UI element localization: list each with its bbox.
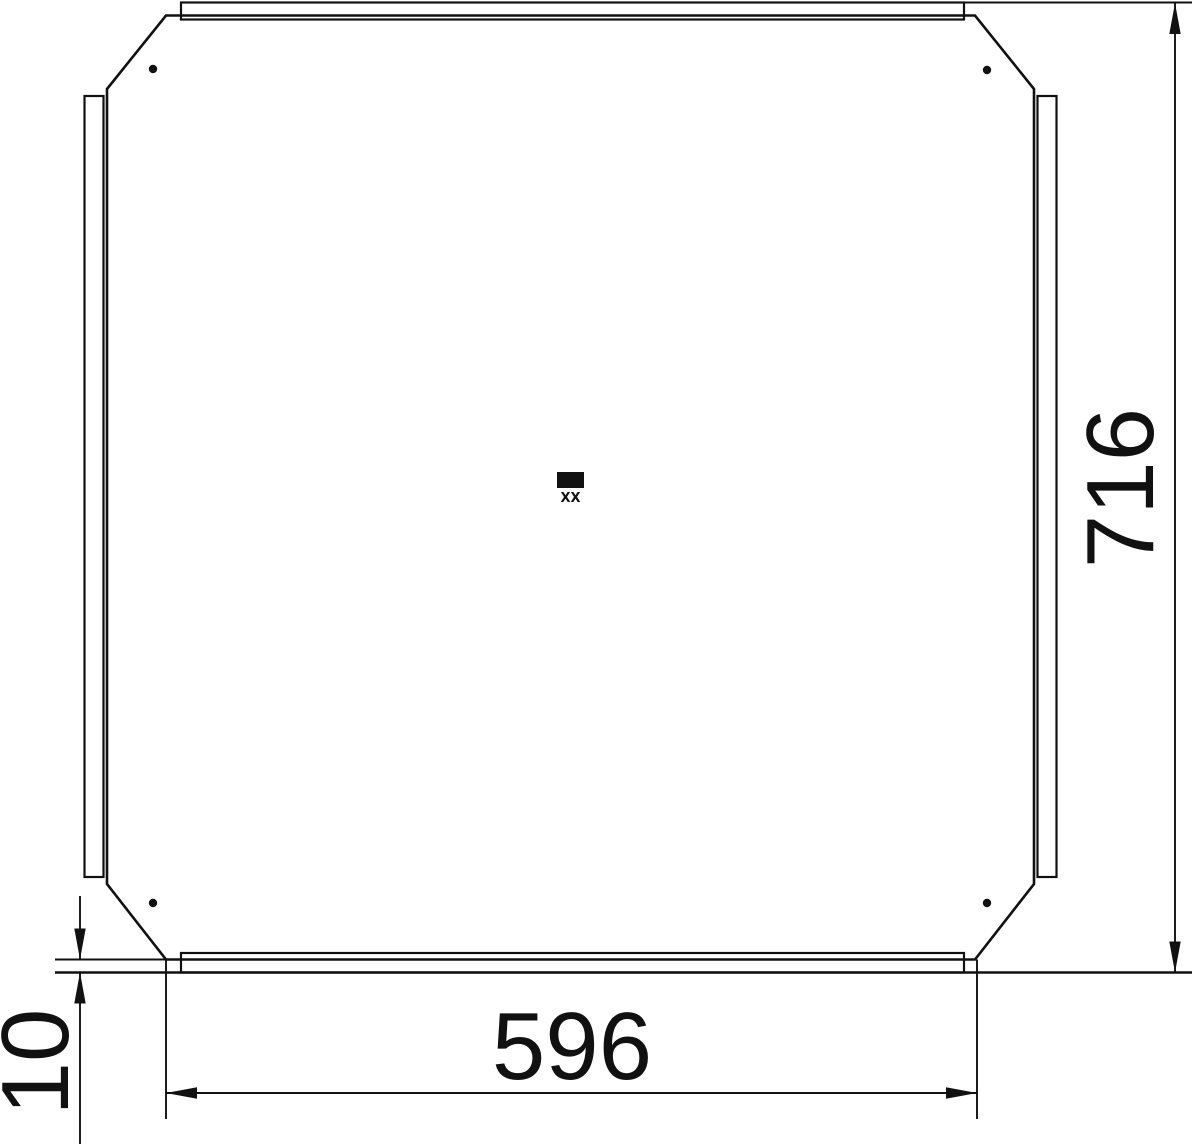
center-stamp: XX: [557, 472, 584, 506]
arrow-lip-down: [74, 929, 85, 960]
top-rail: [181, 3, 964, 20]
dim-label-height: 716: [1067, 408, 1174, 568]
arrow-width-right: [946, 1087, 977, 1098]
hole-bottom-left: [149, 899, 157, 907]
hole-top-left: [149, 65, 157, 73]
hole-bottom-right: [983, 899, 991, 907]
dim-label-width: 596: [492, 993, 652, 1100]
arrow-height-top: [1169, 3, 1180, 34]
right-rail: [1038, 96, 1057, 877]
extension-lines: [55, 3, 1192, 1120]
drawing-canvas: XX 716 596 10: [0, 0, 1200, 1144]
dim-label-lip: 10: [0, 1009, 89, 1116]
arrow-width-left: [166, 1087, 197, 1098]
dimension-width: 596: [166, 993, 977, 1100]
arrow-height-bottom: [1169, 942, 1180, 973]
dimension-lip: 10: [0, 896, 89, 1144]
technical-dimension-drawing: XX 716 596 10: [0, 0, 1200, 1144]
center-stamp-plate: [557, 472, 584, 488]
dimension-height: 716: [1067, 3, 1181, 973]
left-rail: [85, 96, 104, 877]
center-stamp-text: XX: [560, 491, 580, 506]
hole-top-right: [983, 66, 991, 74]
arrow-lip-up: [74, 973, 85, 1004]
bottom-rail: [181, 953, 964, 973]
